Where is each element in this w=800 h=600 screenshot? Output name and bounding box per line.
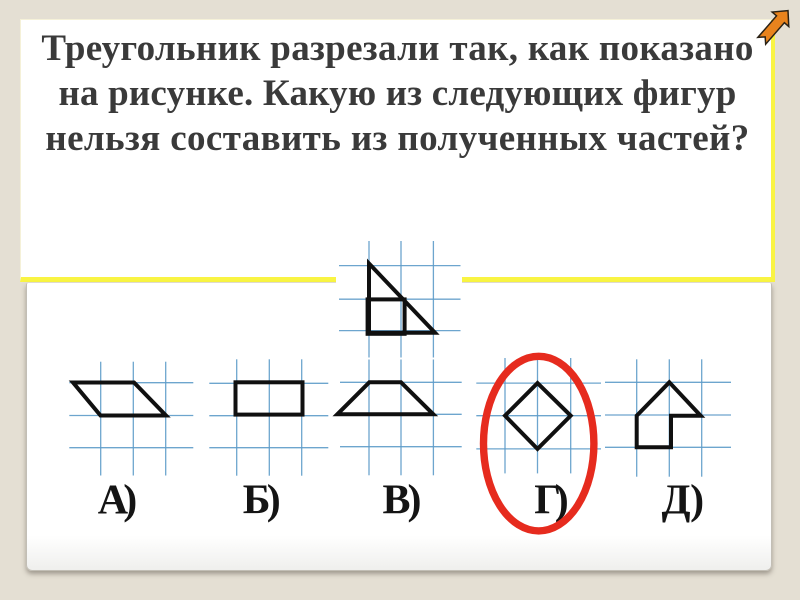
svg-text:Г): Г) — [534, 478, 569, 524]
svg-text:Б): Б) — [243, 478, 281, 524]
svg-text:Д): Д) — [662, 478, 705, 524]
svg-text:А): А) — [98, 478, 138, 524]
svg-text:В): В) — [383, 478, 422, 524]
